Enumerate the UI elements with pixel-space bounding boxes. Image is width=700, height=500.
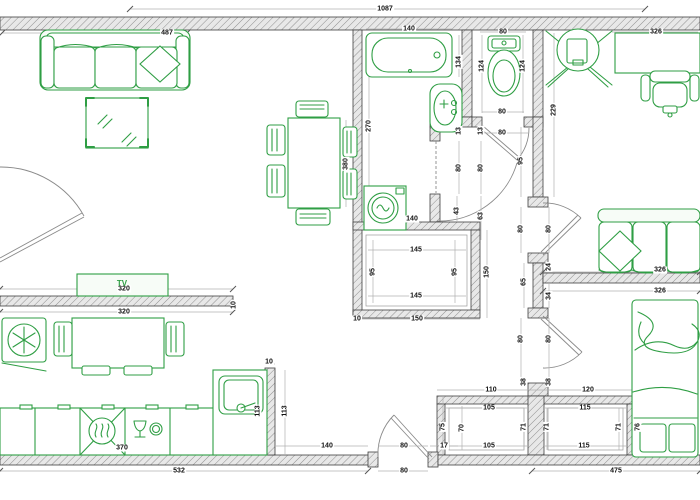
dimension-label: 105 (482, 443, 496, 450)
dimension-label: 10 (264, 359, 274, 366)
wall (533, 30, 543, 117)
dimension-label: 13 (456, 126, 463, 136)
washbasin (430, 84, 462, 132)
dimension-label: 115 (578, 405, 591, 412)
tv-label: TV (116, 280, 128, 288)
dimension-label: 134 (456, 55, 463, 69)
dimension-label: 80 (478, 163, 485, 173)
wall (462, 30, 472, 117)
entrance-door (378, 415, 432, 459)
wall (368, 452, 378, 467)
dimension-label: 487 (160, 30, 174, 37)
dimension-label: 270 (366, 119, 373, 133)
dimension-label: 43 (454, 206, 461, 216)
wall (0, 455, 370, 465)
dimension-label: 10 (231, 300, 238, 310)
dimension-label: 1087 (376, 6, 394, 13)
dimension-label: 140 (405, 216, 419, 223)
office-chair (641, 71, 699, 117)
dimension-label: 145 (409, 247, 423, 254)
wall (528, 396, 544, 455)
dimension-label: 532 (172, 468, 186, 475)
wall (0, 17, 700, 30)
dimension-label: 326 (649, 29, 663, 36)
dimension-label: 105 (482, 405, 496, 412)
dimension-label: 326 (653, 267, 667, 274)
dimension-label: 76 (635, 422, 642, 432)
corner-tv (546, 29, 612, 87)
dimension-label: 63 (478, 211, 485, 221)
washing-machine (364, 186, 406, 230)
double-bed (632, 300, 699, 457)
lounge-sofa (598, 209, 700, 273)
sofa (40, 30, 190, 90)
dimension-label: 80 (399, 443, 409, 450)
dimension-label: 113 (282, 404, 289, 417)
dimension-label: 17 (439, 443, 449, 450)
dimension-label: 80 (546, 334, 553, 344)
floor-plan: 1087487140803261341241242292708080131380… (0, 0, 700, 500)
toilet (488, 36, 520, 96)
dimension-label: 24 (546, 262, 553, 272)
furniture (0, 29, 700, 457)
wall (528, 308, 548, 318)
dimension-label: 150 (484, 265, 491, 279)
dimension-label: 95 (370, 267, 377, 277)
dimension-label: 70 (459, 423, 466, 433)
dimension-label: 140 (320, 443, 334, 450)
dimension-label: 124 (479, 59, 486, 73)
dimension-label: 229 (551, 103, 558, 117)
dimension-label: 475 (609, 468, 623, 475)
dimension-label: 113 (255, 404, 262, 417)
dimension-label: 140 (402, 26, 416, 33)
refrigerator (2, 318, 46, 371)
dimension-label: 80 (546, 224, 553, 234)
kitchen-table (54, 318, 184, 375)
dimension-label: 71 (616, 422, 623, 432)
dimension-label: 95 (452, 267, 459, 277)
dimension-label: 34 (546, 291, 553, 301)
desk (615, 33, 700, 73)
dimension-label: 80 (456, 163, 463, 173)
dimension-label: 80 (497, 109, 507, 116)
dimension-label: 38 (546, 377, 553, 387)
wall (543, 273, 700, 283)
bathroom-door (436, 141, 517, 221)
dimension-label: 150 (410, 316, 424, 323)
living-room-door (0, 167, 84, 262)
wall (528, 197, 548, 207)
floor-plan-drawing (0, 0, 700, 500)
wall (533, 117, 543, 197)
dimension-label: 124 (520, 59, 527, 73)
dimension-label: 80 (498, 29, 508, 36)
dimension-label: 80 (497, 130, 507, 137)
dimension-label: 326 (653, 288, 667, 295)
dimension-label: 65 (521, 277, 528, 287)
dimension-label: 95 (518, 156, 525, 166)
wall (471, 230, 480, 310)
wall (0, 296, 233, 306)
dimension-label: 370 (115, 445, 129, 452)
dimension-label: 110 (484, 387, 497, 394)
wall (533, 263, 543, 308)
dimension-label: 71 (544, 422, 551, 432)
dimension-label: 75 (440, 422, 447, 432)
dimension-label: 10 (352, 316, 362, 323)
dimension-label: 120 (581, 387, 595, 394)
dimension-label: 380 (343, 157, 350, 171)
dimension-label: 80 (518, 224, 525, 234)
dimension-label: 80 (399, 468, 409, 475)
coffee-table (86, 98, 148, 148)
dimension-label: 38 (521, 377, 528, 387)
dimension-label: 71 (521, 422, 528, 432)
dimension-label: 145 (409, 293, 423, 300)
bathtub (366, 33, 452, 77)
wall (430, 194, 440, 222)
dimension-label: 80 (518, 334, 525, 344)
dimension-label: 320 (117, 309, 131, 316)
dimension-label: 13 (478, 126, 485, 136)
dimension-label: 115 (577, 443, 590, 450)
